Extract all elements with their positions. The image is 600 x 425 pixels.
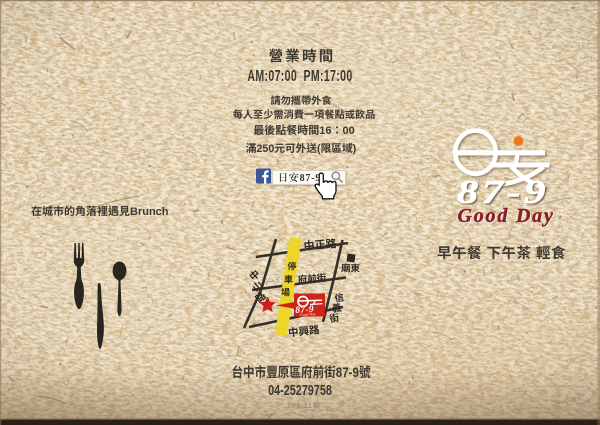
svg-text:中正路: 中正路 [303,235,337,254]
svg-text:府前街: 府前街 [297,270,327,286]
svg-text:場: 場 [281,285,290,298]
svg-text:車: 車 [284,272,293,285]
svg-text:廟東: 廟東 [341,261,361,275]
svg-text:停: 停 [287,259,296,272]
svg-text:中興路: 中興路 [287,322,320,340]
